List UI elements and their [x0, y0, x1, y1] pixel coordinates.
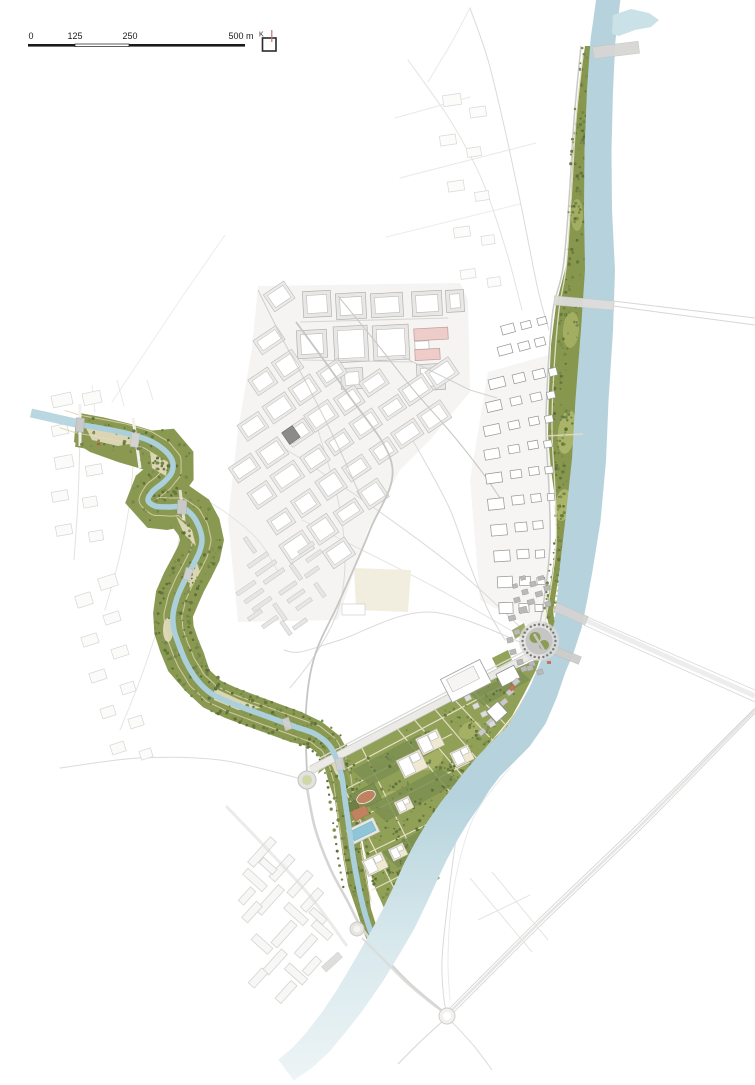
svg-text:0: 0 — [28, 31, 33, 41]
svg-text:K: K — [259, 32, 264, 39]
svg-text:250: 250 — [122, 31, 137, 41]
svg-text:500 m: 500 m — [228, 31, 253, 41]
svg-text:125: 125 — [67, 31, 82, 41]
